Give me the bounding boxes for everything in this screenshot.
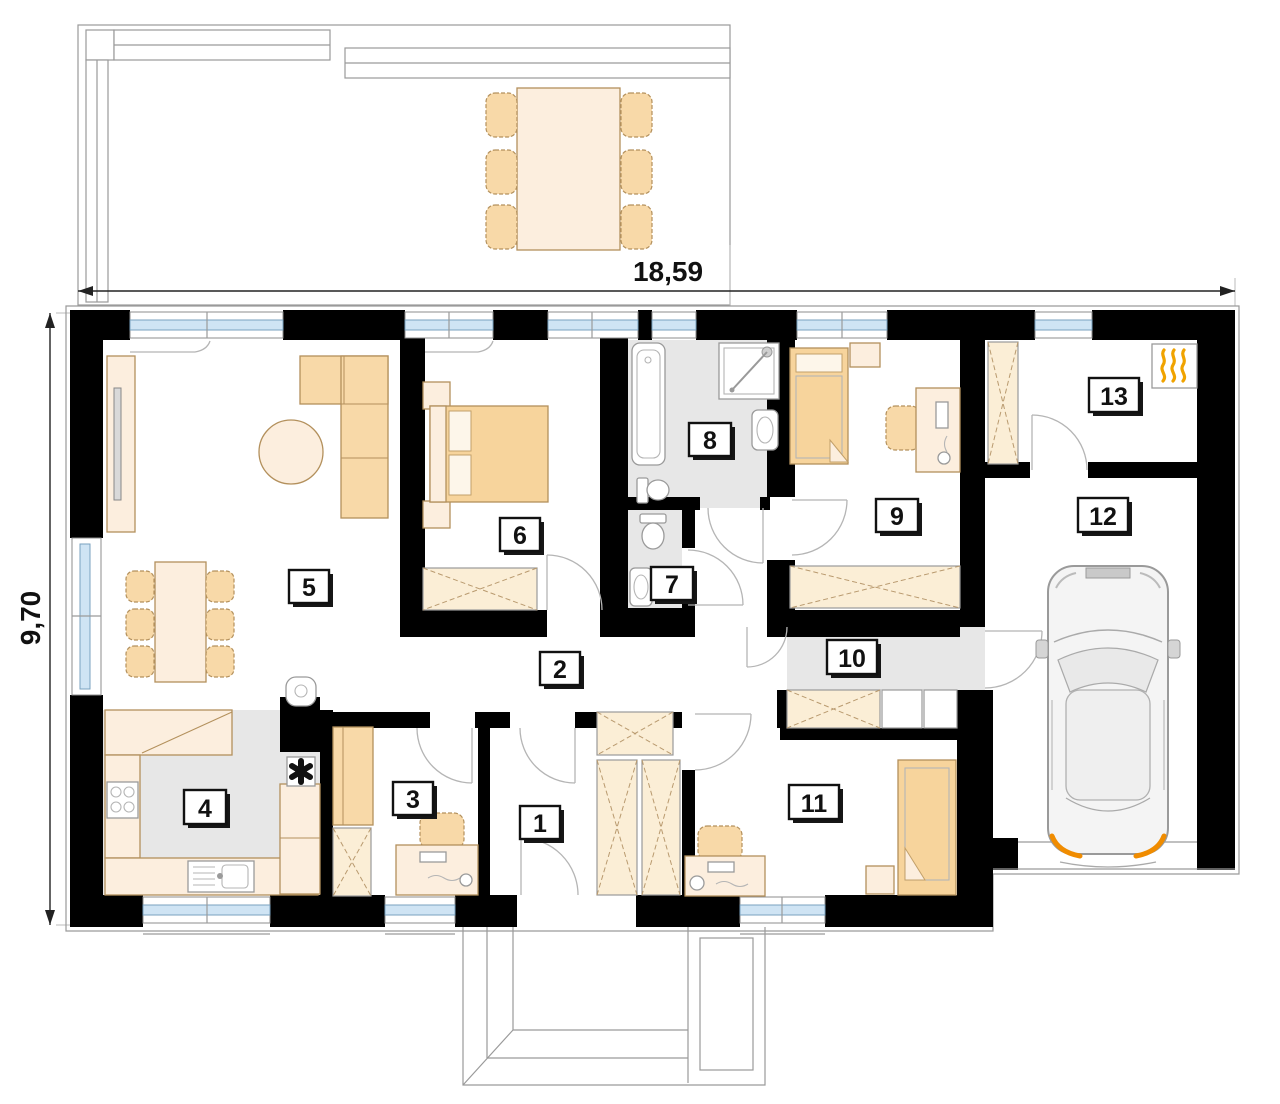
washbasin xyxy=(630,568,652,606)
dining-chair xyxy=(126,646,154,677)
svg-text:7: 7 xyxy=(665,571,679,599)
room-label-6: 6 xyxy=(500,518,544,555)
desk xyxy=(685,856,765,896)
room11-furniture xyxy=(685,760,956,896)
room-label-10: 10 xyxy=(827,640,881,678)
svg-text:12: 12 xyxy=(1089,503,1117,531)
dining-chair xyxy=(206,609,234,640)
cabinet xyxy=(882,690,922,728)
door-garage xyxy=(985,631,1042,688)
room-label-5: 5 xyxy=(289,570,333,607)
outdoor-chair xyxy=(621,150,652,194)
hob xyxy=(107,782,138,818)
door-room9 xyxy=(792,500,847,555)
wardrobe xyxy=(642,760,680,895)
svg-text:11: 11 xyxy=(801,790,828,818)
svg-text:13: 13 xyxy=(1100,383,1128,411)
fridge-cabinet xyxy=(280,784,320,894)
room-label-3: 3 xyxy=(393,782,437,819)
dimension-height-label: 9,70 xyxy=(15,591,46,646)
room-label-12: 12 xyxy=(1078,498,1132,536)
wardrobe xyxy=(790,566,960,608)
svg-text:8: 8 xyxy=(703,427,717,455)
window xyxy=(405,312,493,338)
wardrobe xyxy=(597,760,637,895)
outdoor-chair xyxy=(486,205,517,249)
living-room-furniture xyxy=(107,356,388,682)
car-mirror xyxy=(1036,640,1048,658)
dining-table xyxy=(126,562,234,682)
floor-plan-page: 18,59 9,70 xyxy=(0,0,1280,1104)
svg-text:6: 6 xyxy=(513,522,527,550)
nightstand xyxy=(423,501,450,528)
window xyxy=(1035,312,1092,338)
dining-chair xyxy=(126,571,154,602)
wardrobe xyxy=(423,568,537,610)
corridor-closets xyxy=(787,690,957,728)
single-bed xyxy=(790,348,848,464)
room-label-1: 1 xyxy=(520,806,564,843)
svg-text:1: 1 xyxy=(533,810,547,838)
double-bed xyxy=(430,406,548,502)
desk-chair xyxy=(886,406,920,450)
svg-text:2: 2 xyxy=(553,656,567,684)
hall-closets xyxy=(597,712,680,895)
room6-furniture xyxy=(423,382,548,610)
outdoor-chair xyxy=(621,205,652,249)
outdoor-chair xyxy=(486,93,517,137)
kitchen-counter xyxy=(105,710,232,755)
room-label-4: 4 xyxy=(184,790,230,828)
outdoor-chair xyxy=(621,93,652,137)
desk xyxy=(916,388,960,472)
window xyxy=(143,897,270,934)
room-label-13: 13 xyxy=(1089,378,1143,416)
window xyxy=(72,538,101,695)
flue-fan-icon xyxy=(287,757,315,786)
terrace-door-swing xyxy=(130,341,210,352)
toilet xyxy=(640,514,666,549)
sofa xyxy=(333,727,373,825)
dimension-height: 9,70 xyxy=(15,313,70,925)
desk-chair xyxy=(698,826,742,860)
door-room11 xyxy=(695,714,751,770)
svg-text:5: 5 xyxy=(302,574,316,602)
coffee-table xyxy=(259,420,323,484)
svg-text:4: 4 xyxy=(198,795,212,823)
room9-furniture xyxy=(790,343,960,608)
dimension-width-label: 18,59 xyxy=(633,256,703,287)
room-label-11: 11 xyxy=(789,785,843,823)
door-room3 xyxy=(417,728,472,783)
dining-chair xyxy=(126,609,154,640)
entrance-door xyxy=(521,838,578,895)
single-bed xyxy=(898,760,956,895)
door-bathroom xyxy=(708,508,763,563)
door-room6 xyxy=(547,555,602,610)
cabinet xyxy=(924,690,957,728)
kettle xyxy=(286,677,316,706)
kitchen-sink xyxy=(188,861,254,892)
window xyxy=(652,312,696,338)
nightstand xyxy=(866,866,894,894)
window xyxy=(548,312,638,338)
tv-cabinet xyxy=(107,356,135,532)
dining-chair xyxy=(206,571,234,602)
floor-plan: 18,59 9,70 xyxy=(0,0,1280,1104)
bathtub xyxy=(632,343,665,465)
dining-chair xyxy=(206,646,234,677)
svg-text:10: 10 xyxy=(838,645,866,673)
window xyxy=(740,897,825,934)
washbasin xyxy=(752,410,778,450)
shelf xyxy=(850,343,880,367)
car xyxy=(1036,566,1180,867)
car-mirror xyxy=(1168,640,1180,658)
outdoor-dining-table xyxy=(486,88,652,250)
desk xyxy=(396,845,478,895)
wardrobe xyxy=(597,712,673,755)
svg-text:9: 9 xyxy=(890,503,904,531)
window xyxy=(385,897,455,934)
wardrobe xyxy=(988,342,1018,464)
svg-text:3: 3 xyxy=(406,786,420,814)
room-label-7: 7 xyxy=(651,567,697,604)
entrance-porch xyxy=(463,927,765,1085)
room-label-9: 9 xyxy=(876,499,922,536)
shower xyxy=(719,343,779,399)
room-label-2: 2 xyxy=(540,652,584,689)
outdoor-chair xyxy=(486,150,517,194)
window xyxy=(130,312,283,338)
door-room1 xyxy=(520,728,575,783)
door-room13 xyxy=(1032,415,1087,470)
heating-flames-icon xyxy=(1152,344,1197,388)
window xyxy=(797,312,887,338)
wardrobe xyxy=(333,828,371,896)
terrace-door-swing xyxy=(425,341,493,352)
room-label-8: 8 xyxy=(689,423,735,460)
wardrobe xyxy=(787,690,880,728)
nightstand xyxy=(423,382,450,409)
